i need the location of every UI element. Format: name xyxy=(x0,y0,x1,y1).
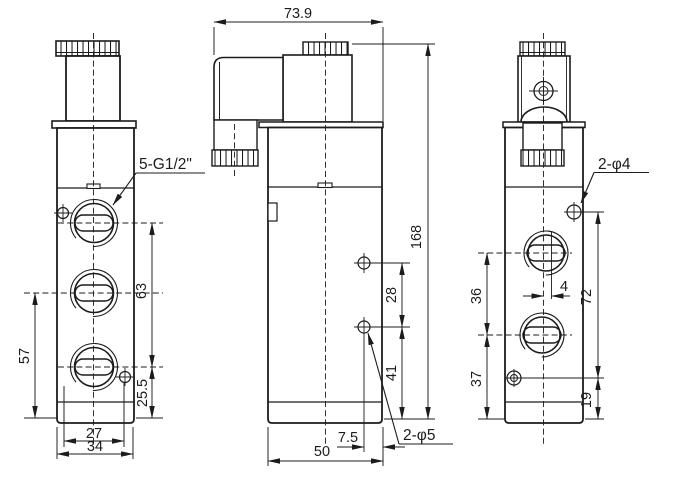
left-view: 57 63 25.5 27 34 5-G1/2" xyxy=(17,33,205,459)
coil-body xyxy=(283,55,352,122)
dim-port-pitch-left: 63 xyxy=(134,283,150,299)
dim-bottom-offset: 25.5 xyxy=(135,379,151,407)
phi4-hole-label: 2-φ4 xyxy=(598,156,631,173)
gland-nut-end xyxy=(521,150,564,166)
valve-technical-drawing: 57 63 25.5 27 34 5-G1/2" xyxy=(0,0,673,499)
dim-screw-to-bottom: 19 xyxy=(579,392,595,408)
dim-overall-height: 168 xyxy=(409,225,425,249)
pilot-hole-label: 2-φ5 xyxy=(403,427,435,444)
drawing-canvas: 57 63 25.5 27 34 5-G1/2" xyxy=(0,0,673,499)
side-port-mark xyxy=(268,203,277,221)
dim-hole-pitch: 28 xyxy=(384,287,400,303)
dim-hole-to-bottom: 41 xyxy=(384,365,400,381)
right-view: 4 36 37 72 19 2-φ4 xyxy=(469,33,649,446)
dim-hole-span: 72 xyxy=(579,289,595,305)
cable-gland-end xyxy=(523,123,562,150)
valve-body xyxy=(505,128,583,424)
gland-nut xyxy=(212,150,258,166)
dim-overall-width: 73.9 xyxy=(284,6,312,22)
valve-body xyxy=(57,128,134,423)
dim-body-width-left: 34 xyxy=(87,439,103,455)
dim-port-pitch-right: 36 xyxy=(469,288,485,304)
knurled-cap xyxy=(520,42,565,56)
din-connector xyxy=(214,58,283,121)
dim-port-offset: 4 xyxy=(560,279,568,295)
dim-port-to-bottom: 37 xyxy=(469,371,485,387)
dim-body-width-front: 50 xyxy=(314,444,330,460)
valve-body xyxy=(268,128,382,424)
cable-gland xyxy=(214,120,257,150)
dim-hole-edge-offset: 7.5 xyxy=(338,430,358,446)
front-view: 73.9 168 28 41 7.5 50 2-φ5 xyxy=(212,6,453,466)
thread-size-label: 5-G1/2" xyxy=(139,156,192,173)
body-tab xyxy=(318,183,332,188)
knurled-cap xyxy=(56,41,119,56)
solenoid-neck xyxy=(66,56,120,121)
dim-left-height: 57 xyxy=(17,348,33,364)
flange xyxy=(52,121,136,128)
